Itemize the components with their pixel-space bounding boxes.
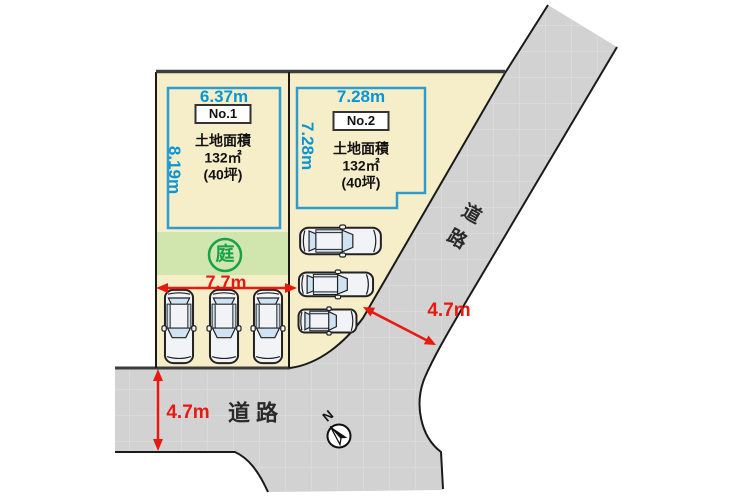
- lot1-area-info: 土地面積 132㎡ (40坪): [195, 133, 251, 184]
- lot1-area-title: 土地面積: [195, 133, 251, 150]
- lot1-area-value: 132㎡: [195, 150, 251, 167]
- road-bottom-edge: [115, 452, 268, 492]
- parking-cars-lot1: [162, 290, 285, 363]
- lot2-area-tsubo: (40坪): [333, 175, 389, 192]
- lot1-depth-dimension: 8.19m: [165, 146, 183, 194]
- compass: [327, 423, 351, 448]
- car-horizontal-1: [300, 225, 381, 257]
- site-plan-drawing: [0, 0, 735, 500]
- garden-label: 庭: [215, 245, 234, 265]
- lot2-area-title: 土地面積: [333, 141, 389, 158]
- car-vertical-2: [207, 290, 241, 363]
- parking-width-label: 7.7m: [205, 274, 246, 293]
- car-vertical-3: [251, 290, 285, 363]
- bottom-road-label: 道 路: [228, 401, 278, 424]
- lot1-area-tsubo: (40坪): [195, 167, 251, 184]
- bottom-road-width-label: 4.7m: [166, 403, 209, 423]
- lot2-area-info: 土地面積 132㎡ (40坪): [333, 141, 389, 192]
- lot2-number-badge: No.2: [333, 111, 390, 131]
- side-road-width-label: 4.7m: [427, 301, 470, 321]
- site-plan: 6.37m 8.19m No.1 土地面積 132㎡ (40坪) 7.28m 7…: [0, 0, 735, 500]
- car-horizontal-2: [299, 270, 373, 299]
- car-horizontal-3: [299, 307, 357, 335]
- lot1-number-badge: No.1: [195, 104, 252, 124]
- lot2-area-value: 132㎡: [333, 158, 389, 175]
- lot2-depth-dimension: 7.28m: [298, 122, 316, 170]
- lot2-width-dimension: 7.28m: [337, 88, 385, 106]
- car-vertical-1: [162, 290, 196, 363]
